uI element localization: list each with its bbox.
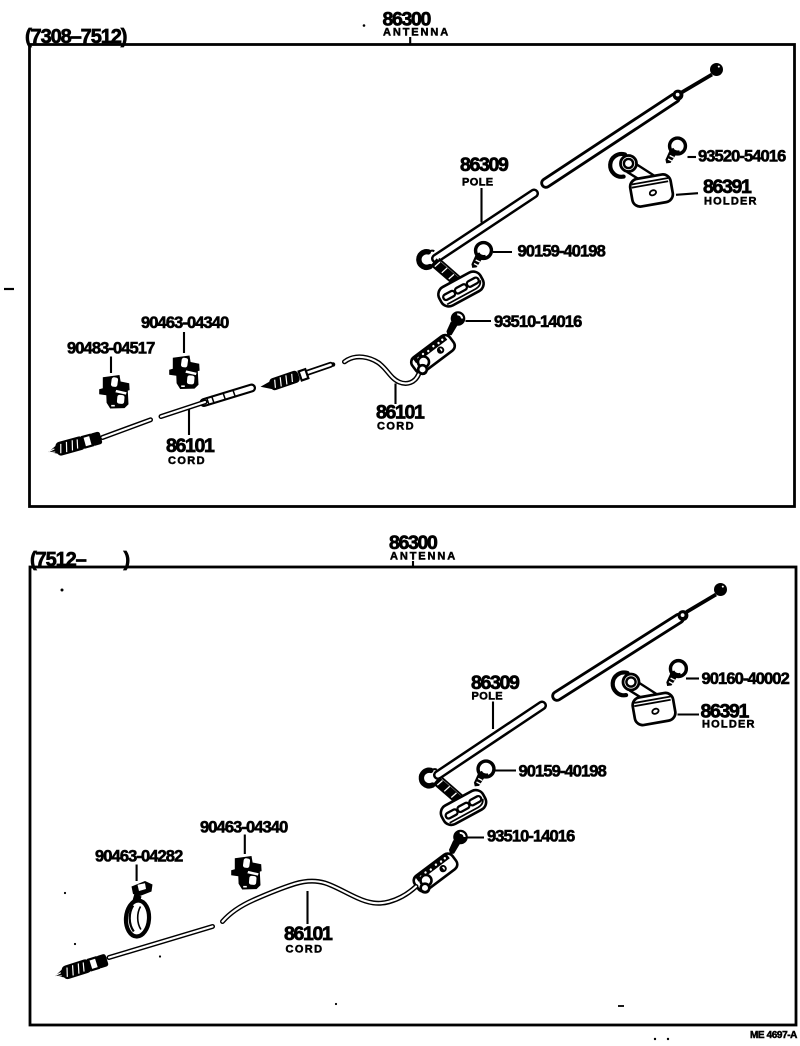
svg-text:93520-54016: 93520-54016 bbox=[698, 148, 786, 166]
svg-text:90463-04340: 90463-04340 bbox=[141, 314, 229, 332]
svg-text:86309: 86309 bbox=[460, 154, 509, 176]
svg-text:90463-04282: 90463-04282 bbox=[95, 848, 183, 866]
svg-text:HOLDER: HOLDER bbox=[702, 719, 756, 731]
svg-text:CORD: CORD bbox=[377, 421, 415, 433]
svg-text:HOLDER: HOLDER bbox=[704, 196, 758, 208]
svg-text:CORD: CORD bbox=[168, 455, 206, 467]
svg-text:(7512–: (7512– bbox=[30, 549, 87, 571]
svg-text:90159-40198: 90159-40198 bbox=[519, 763, 607, 781]
svg-text:86101: 86101 bbox=[166, 435, 215, 457]
svg-text:ANTENNA: ANTENNA bbox=[390, 551, 457, 563]
svg-text:90463-04340: 90463-04340 bbox=[200, 819, 288, 837]
svg-text:86101: 86101 bbox=[284, 923, 333, 945]
svg-text:POLE: POLE bbox=[472, 691, 504, 703]
svg-text:ANTENNA: ANTENNA bbox=[383, 27, 450, 39]
svg-text:90160-40002: 90160-40002 bbox=[702, 670, 790, 688]
svg-text:CORD: CORD bbox=[286, 944, 324, 956]
svg-text:90483-04517: 90483-04517 bbox=[67, 340, 155, 358]
svg-text:93510-14016: 93510-14016 bbox=[487, 828, 575, 846]
svg-text:): ) bbox=[124, 549, 130, 571]
svg-text:(7308–7512): (7308–7512) bbox=[25, 26, 127, 48]
svg-text:ME 4697-A: ME 4697-A bbox=[750, 1030, 797, 1041]
svg-text:POLE: POLE bbox=[462, 177, 494, 189]
svg-text:93510-14016: 93510-14016 bbox=[494, 313, 582, 331]
svg-text:90159-40198: 90159-40198 bbox=[518, 243, 606, 261]
